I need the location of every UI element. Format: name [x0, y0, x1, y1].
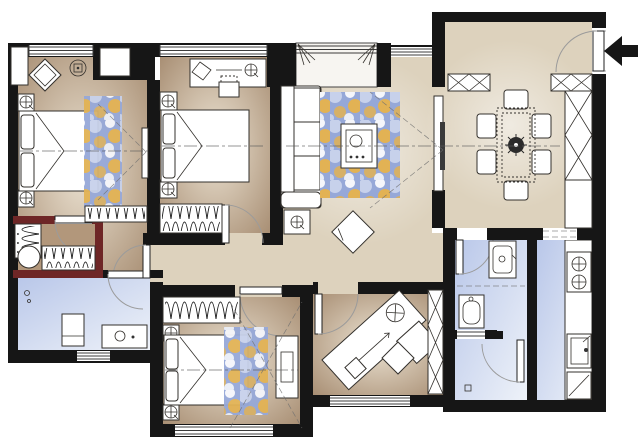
- window-bedroom-3: [175, 425, 273, 436]
- burner-icon: [572, 257, 586, 271]
- hanging-rail-horizontal: [42, 246, 95, 270]
- vanity-sink: [489, 241, 516, 278]
- stove-two-burners: [567, 252, 591, 292]
- chair: [504, 90, 528, 109]
- sideboard-x-cabinet: [551, 74, 592, 91]
- floor-plan-canvas: [0, 0, 640, 442]
- sofa-armrest: [281, 192, 321, 208]
- wall-niche: [100, 48, 130, 76]
- vent-bathroom-2: [457, 330, 485, 339]
- burner-icon: [572, 275, 586, 289]
- window-study: [330, 396, 410, 406]
- sectional-sofa: [281, 86, 321, 208]
- kitchen-sink: [567, 334, 591, 368]
- hanging-wardrobe: [85, 206, 147, 222]
- wall-niche: [11, 47, 28, 85]
- chair: [477, 150, 496, 174]
- corner-unit: [567, 372, 591, 399]
- floor-plan-drawing: [0, 0, 640, 442]
- tv-panel: [434, 96, 445, 191]
- stool-circle: [18, 246, 40, 268]
- bedroom-rug: [224, 327, 268, 415]
- pillow: [163, 148, 175, 178]
- pillow: [166, 371, 178, 401]
- hanging-wardrobe: [163, 297, 240, 323]
- bookshelf-x: [428, 290, 443, 394]
- window-bedroom-2: [160, 45, 267, 56]
- bedroom-rug: [84, 96, 122, 208]
- hanging-wardrobe: [160, 204, 222, 233]
- sideboard-x-cabinet: [448, 74, 490, 91]
- pillow: [163, 114, 175, 144]
- chair: [477, 114, 496, 138]
- desk-chair: [219, 82, 239, 97]
- centerpiece-plant-icon: [505, 134, 527, 156]
- window-bathroom-1: [77, 351, 110, 361]
- window-living-right: [391, 47, 432, 57]
- pillow: [166, 339, 178, 369]
- window-master-bedroom: [29, 45, 93, 56]
- cabinet-washer: [62, 314, 84, 346]
- tall-x-cabinet: [565, 91, 592, 180]
- chair: [504, 181, 528, 200]
- vanity-sink: [102, 325, 147, 348]
- pillow: [21, 115, 34, 149]
- toilet: [459, 295, 484, 328]
- pillow: [21, 153, 34, 187]
- kitchen-cased-opening: [543, 228, 577, 240]
- low-cabinet: [565, 180, 592, 228]
- side-table: [284, 210, 310, 234]
